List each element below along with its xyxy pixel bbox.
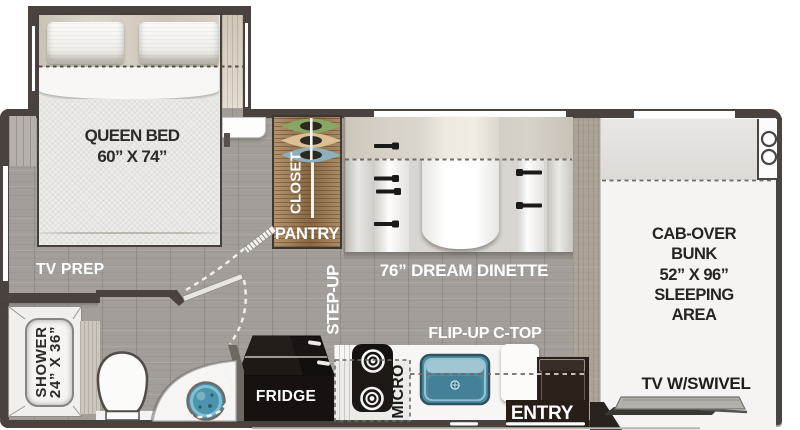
- svg-text:CLOSET: CLOSET: [288, 152, 305, 214]
- svg-text:STEP-UP: STEP-UP: [324, 265, 343, 335]
- svg-text:24” X 36”: 24” X 36”: [47, 326, 64, 398]
- svg-text:MICRO: MICRO: [390, 364, 407, 418]
